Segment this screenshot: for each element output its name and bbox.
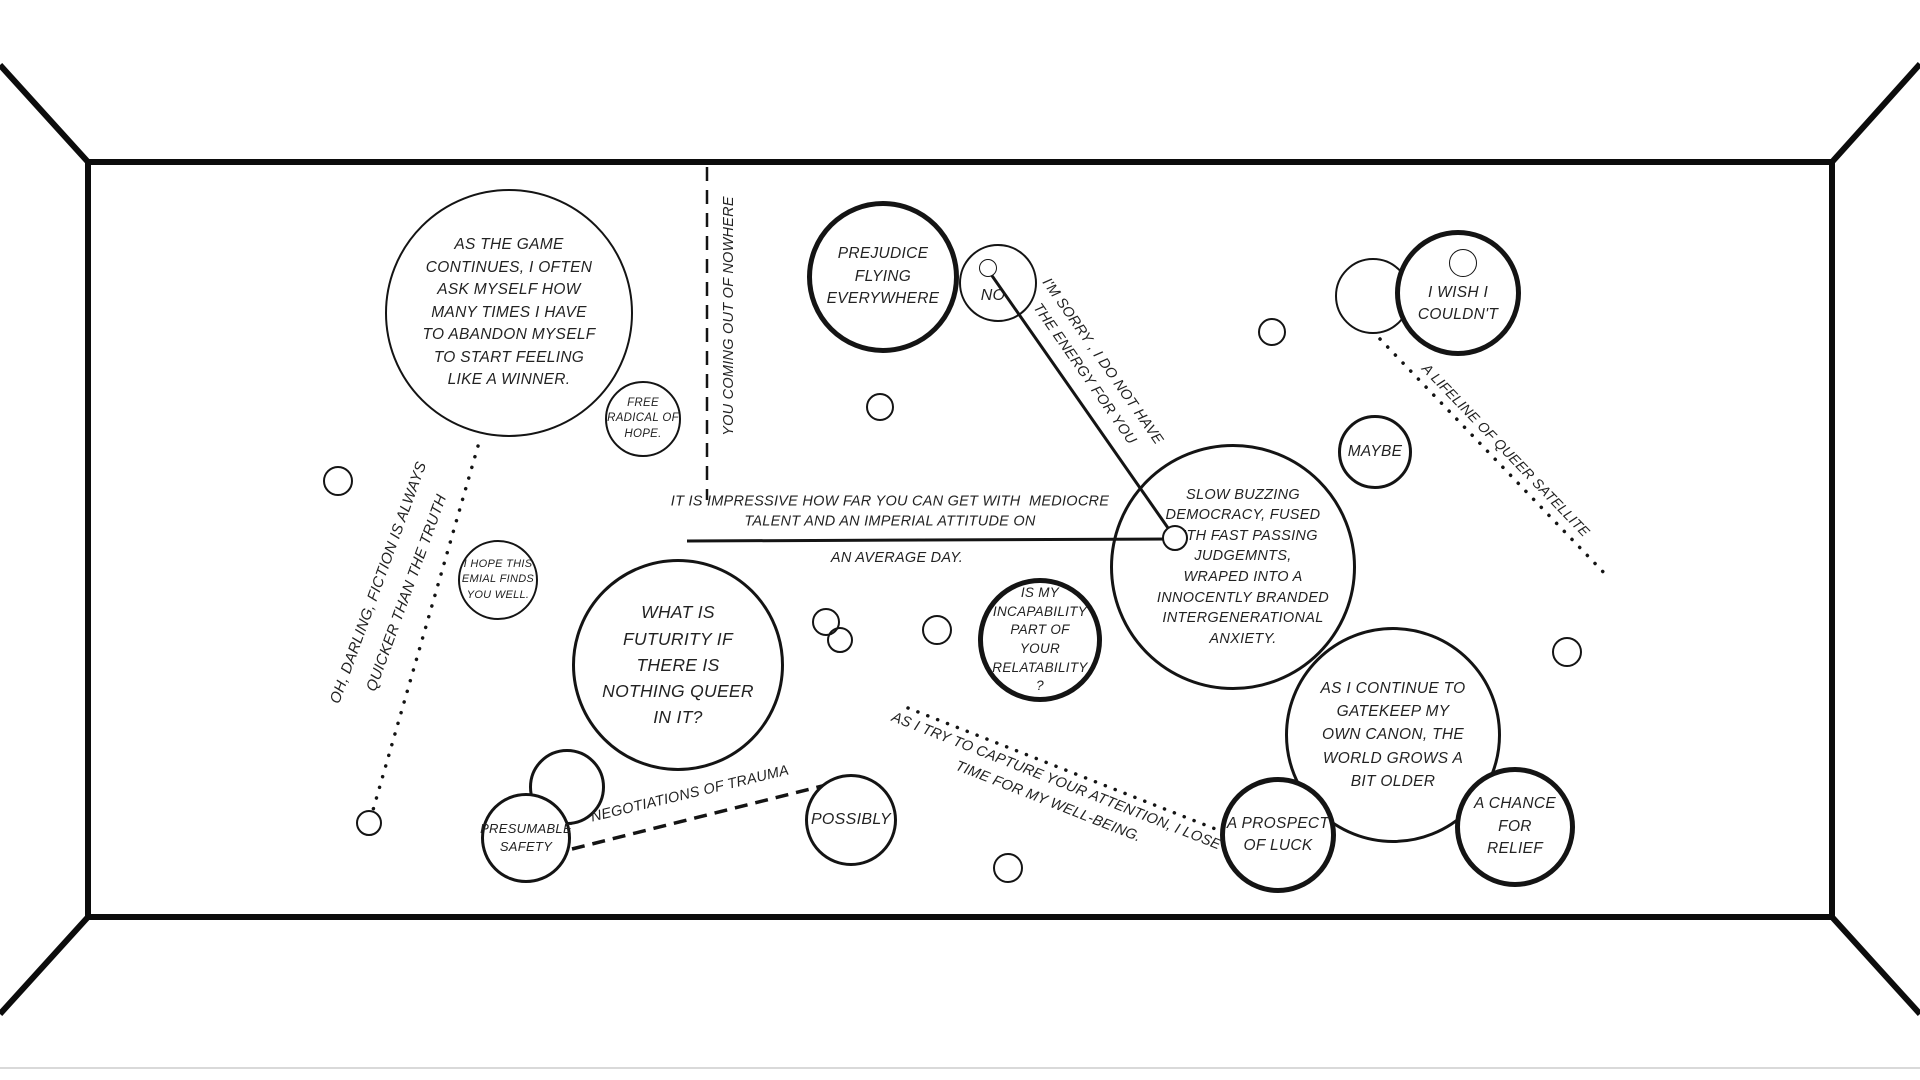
label-average-day: AN AVERAGE DAY. [831,550,963,566]
label-impressive-text: IT IS IMPRESSIVE HOW FAR YOU CAN GET WIT… [671,492,1109,531]
label-average-day-text: AN AVERAGE DAY. [831,550,963,566]
anchor-circle-no [979,259,997,277]
inner-circle-i-wish [1449,249,1477,277]
label-you-coming: YOU COMING OUT OF NOWHERE [721,196,737,436]
mind-map-canvas: AS THE GAME CONTINUES, I OFTEN ASK MYSEL… [0,0,1920,1080]
label-you-coming-text: YOU COMING OUT OF NOWHERE [721,196,737,436]
anchor-circle-slow-buzzing [1162,525,1188,551]
label-impressive: IT IS IMPRESSIVE HOW FAR YOU CAN GET WIT… [671,492,1109,531]
connector-line-layer [0,0,1920,1080]
line-impressive [687,539,1170,541]
